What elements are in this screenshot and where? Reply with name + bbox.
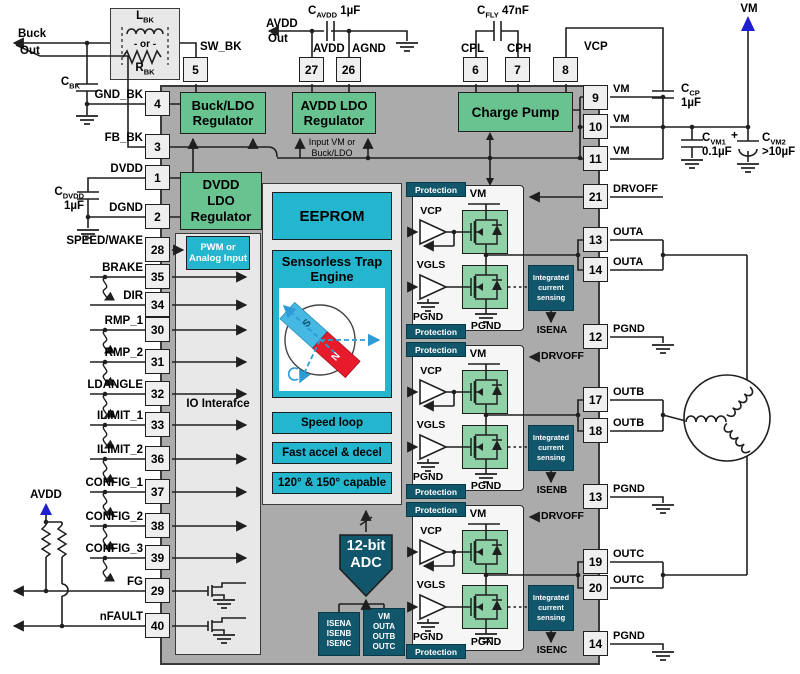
speed-wake-label: SPEED/WAKE: [30, 235, 143, 247]
pin-32-ldangle: 32: [145, 381, 170, 406]
pin-14-outa: 14: [583, 257, 608, 282]
ccp-value: 1µF: [681, 97, 701, 109]
pgnd-bottom-label-b: PGND: [462, 480, 510, 492]
pin-26-agnd: 26: [336, 57, 361, 82]
config2-label: CONFIG_2: [40, 511, 143, 523]
agnd-pin-label: AGND: [352, 43, 386, 55]
outa1-label: OUTA: [613, 226, 643, 238]
pin-21-drvoff: 21: [583, 184, 608, 209]
pin-19-outc: 19: [583, 549, 608, 574]
pin-8-vcp: 8: [553, 57, 578, 82]
drvoff-label-c: DRVOFF: [541, 510, 584, 522]
pin-10-vm: 10: [583, 114, 608, 139]
vcp-label-c: VCP: [413, 525, 449, 537]
isenb-label: ISENB: [524, 485, 580, 496]
dvdd-label: DVDD: [40, 163, 143, 175]
buck-out-label2: Out: [20, 45, 40, 57]
pin-38-config2: 38: [145, 513, 170, 538]
vm-label-c: VM: [453, 508, 503, 520]
pin-36-ilimit2: 36: [145, 446, 170, 471]
pin-20-outc: 20: [583, 575, 608, 600]
pin-39-config3: 39: [145, 545, 170, 570]
pin-7-cph: 7: [505, 57, 530, 82]
pin-37-config1: 37: [145, 479, 170, 504]
motor-driver-block-diagram: Buck/LDO Regulator AVDD LDO Regulator Ch…: [0, 0, 800, 674]
pgnd14-label: PGND: [613, 630, 645, 642]
pin-29-fg: 29: [145, 578, 170, 603]
pin-18-outb: 18: [583, 418, 608, 443]
lbk-label: LBK: [120, 10, 170, 24]
pin-11-vm: 11: [583, 146, 608, 171]
pin-14-pgnd: 14: [583, 631, 608, 656]
rbk-label: RBK: [120, 62, 170, 76]
pin-27-avdd: 27: [299, 57, 324, 82]
fg-label: FG: [40, 576, 143, 588]
pin-13-outa: 13: [583, 227, 608, 252]
vm-label-b: VM: [453, 348, 503, 360]
pgnd-left-label-a: PGND: [405, 311, 451, 323]
vgls-label-a: VGLS: [409, 259, 453, 271]
brake-label: BRAKE: [40, 262, 143, 274]
outb1-label: OUTB: [613, 386, 644, 398]
pin-3-fb-bk: 3: [145, 134, 170, 159]
pin-34-dir: 34: [145, 292, 170, 317]
cph-pin-label: CPH: [507, 43, 531, 55]
rmp2-label: RMP_2: [40, 347, 143, 359]
vm9-label: VM: [613, 83, 630, 95]
avdd-pin-label: AVDD: [313, 43, 345, 55]
cdvdd-label: CDVDD: [30, 186, 84, 200]
pin-33-ilimit1: 33: [145, 412, 170, 437]
pgnd13-label: PGND: [613, 483, 645, 495]
pin-6-cpl: 6: [463, 57, 488, 82]
rmp1-label: RMP_1: [40, 315, 143, 327]
cpl-pin-label: CPL: [461, 43, 484, 55]
input-vm-note: Input VM or Buck/LDO: [296, 137, 368, 159]
vcp-label-b: VCP: [413, 365, 449, 377]
nfault-label: nFAULT: [40, 611, 143, 623]
io-interface-label: IO Interafce: [175, 398, 261, 410]
pgnd-left-label-b: PGND: [405, 471, 451, 483]
config3-label: CONFIG_3: [40, 543, 143, 555]
pin-30-rmp1: 30: [145, 317, 170, 342]
ccp-label: CCP: [681, 83, 700, 97]
pin-4-gnd-bk: 4: [145, 91, 170, 116]
vgls-label-b: VGLS: [409, 419, 453, 431]
ilimit2-label: ILIMIT_2: [40, 444, 143, 456]
pin-17-outb: 17: [583, 387, 608, 412]
gnd-bk-label: GND_BK: [40, 89, 143, 101]
outc1-label: OUTC: [613, 548, 644, 560]
vcp-label-a: VCP: [413, 205, 449, 217]
avdd-out-label1: AVDD: [266, 18, 298, 30]
input-note-line2: Buck/LDO: [296, 148, 368, 159]
ilimit1-label: ILIMIT_1: [40, 410, 143, 422]
or-label: - or -: [120, 39, 170, 50]
buck-out-label1: Buck: [18, 28, 46, 40]
cvm2-plus-sign: +: [731, 128, 738, 142]
outc2-label: OUTC: [613, 574, 644, 586]
dir-label: DIR: [40, 290, 143, 302]
cvm1-value: 0.1µF: [702, 146, 732, 158]
pgnd12-label: PGND: [613, 323, 645, 335]
vm-supply-label: VM: [735, 3, 763, 15]
avdd-pullup-label: AVDD: [23, 489, 69, 501]
cvm2-label: CVM2: [762, 132, 786, 146]
input-note-line1: Input VM or: [296, 137, 368, 148]
cavdd-label: CAVDD 1µF: [308, 5, 360, 19]
drvoff-label-b: DRVOFF: [541, 350, 584, 362]
outa2-label: OUTA: [613, 256, 643, 268]
pin-12-pgnd: 12: [583, 324, 608, 349]
outb2-label: OUTB: [613, 417, 644, 429]
ldangle-label: LDANGLE: [40, 379, 143, 391]
vm10-label: VM: [613, 113, 630, 125]
cvm2-value: >10µF: [762, 146, 795, 158]
adc-line1: 12-bit: [340, 538, 392, 554]
fb-bk-label: FB_BK: [40, 132, 143, 144]
avdd-out-label2: Out: [268, 33, 288, 45]
pin-5-sw-bk: 5: [183, 57, 208, 82]
pin-28-speed-wake: 28: [145, 237, 170, 262]
config1-label: CONFIG_1: [40, 477, 143, 489]
pin-40-nfault: 40: [145, 613, 170, 638]
pin-35-brake: 35: [145, 264, 170, 289]
pin-31-rmp2: 31: [145, 349, 170, 374]
adc-line2: ADC: [340, 555, 392, 571]
pin-2-dgnd: 2: [145, 204, 170, 229]
pin-13-pgnd: 13: [583, 484, 608, 509]
pgnd-bottom-label-a: PGND: [462, 320, 510, 332]
vm11-label: VM: [613, 145, 630, 157]
vcp-pin-label: VCP: [584, 41, 608, 53]
pin-1-dvdd: 1: [145, 165, 170, 190]
pgnd-left-label-c: PGND: [405, 631, 451, 643]
cfly-label: CFLY 47nF: [477, 5, 529, 19]
dgnd-label: DGND: [40, 202, 143, 214]
pgnd-bottom-label-c: PGND: [462, 636, 510, 648]
sw-bk-label: SW_BK: [200, 41, 242, 53]
vgls-label-c: VGLS: [409, 579, 453, 591]
isenc-label: ISENC: [524, 645, 580, 656]
pin-9-vm: 9: [583, 85, 608, 110]
drvoff-pin-label: DRVOFF: [613, 183, 658, 195]
vm-label-a: VM: [453, 188, 503, 200]
cvm1-label: CVM1: [702, 132, 726, 146]
isena-label: ISENA: [524, 325, 580, 336]
